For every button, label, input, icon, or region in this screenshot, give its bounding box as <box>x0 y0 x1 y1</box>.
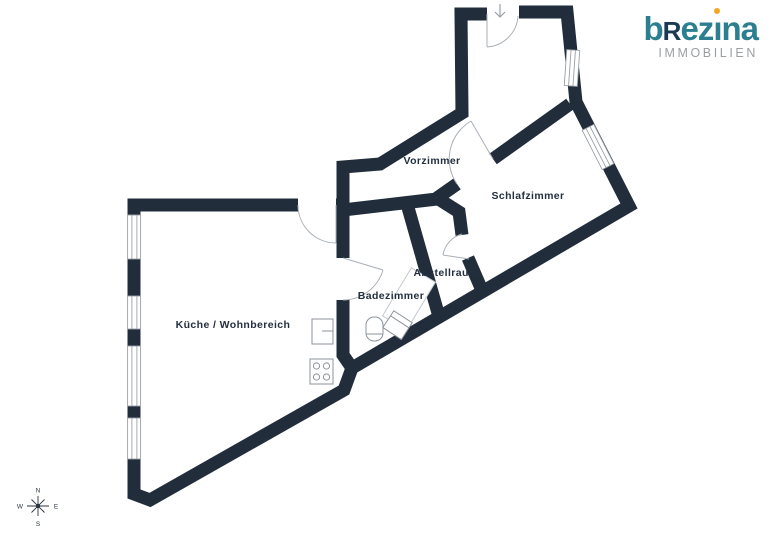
logo-wordmark: bRezına <box>644 12 759 45</box>
abstellraum-door <box>443 234 469 259</box>
entrance-door <box>487 14 518 47</box>
logo-i-stem: ı <box>713 10 721 47</box>
compass-w: W <box>17 504 24 511</box>
label-schlafzimmer: Schlafzimmer <box>491 190 564 202</box>
compass-e: E <box>54 504 59 511</box>
stove-icon <box>310 359 333 384</box>
logo-letters-na: na <box>721 10 758 47</box>
window-left-4 <box>128 418 141 459</box>
schlafzimmer-door <box>449 121 493 184</box>
logo-letter-r: R <box>663 16 681 46</box>
label-badezimmer: Badezimmer <box>358 290 424 302</box>
entrance-arrow-icon <box>495 4 505 17</box>
kitchen-door <box>298 205 336 243</box>
window-left-2 <box>128 296 141 329</box>
window-left-1 <box>128 215 141 259</box>
brezina-logo: bRezına IMMOBILIEN <box>644 12 759 60</box>
toilet-icon <box>366 317 383 341</box>
compass-rose-icon: N S W E <box>12 483 64 531</box>
logo-letter-i: ı <box>713 12 721 45</box>
window-entry-right <box>564 50 579 87</box>
compass-n: N <box>36 488 41 495</box>
logo-i-dot-icon <box>714 8 720 14</box>
room-labels: Vorzimmer Schlafzimmer Abstellraum Badez… <box>176 155 565 331</box>
label-abstellraum: Abstellraum <box>413 267 478 279</box>
label-vorzimmer: Vorzimmer <box>403 155 460 167</box>
logo-letter-b: b <box>644 10 663 47</box>
floor-plan-page: Vorzimmer Schlafzimmer Abstellraum Badez… <box>0 0 770 545</box>
floor-plan: Vorzimmer Schlafzimmer Abstellraum Badez… <box>0 0 770 545</box>
window-left-3 <box>128 346 141 406</box>
label-kueche-wohnbereich: Küche / Wohnbereich <box>176 319 291 331</box>
kitchen-sink-icon <box>312 319 333 344</box>
logo-letters-ez: ez <box>680 10 713 47</box>
compass-s: S <box>36 521 41 528</box>
exterior-walls <box>134 12 629 500</box>
logo-subtitle: IMMOBILIEN <box>644 47 759 60</box>
